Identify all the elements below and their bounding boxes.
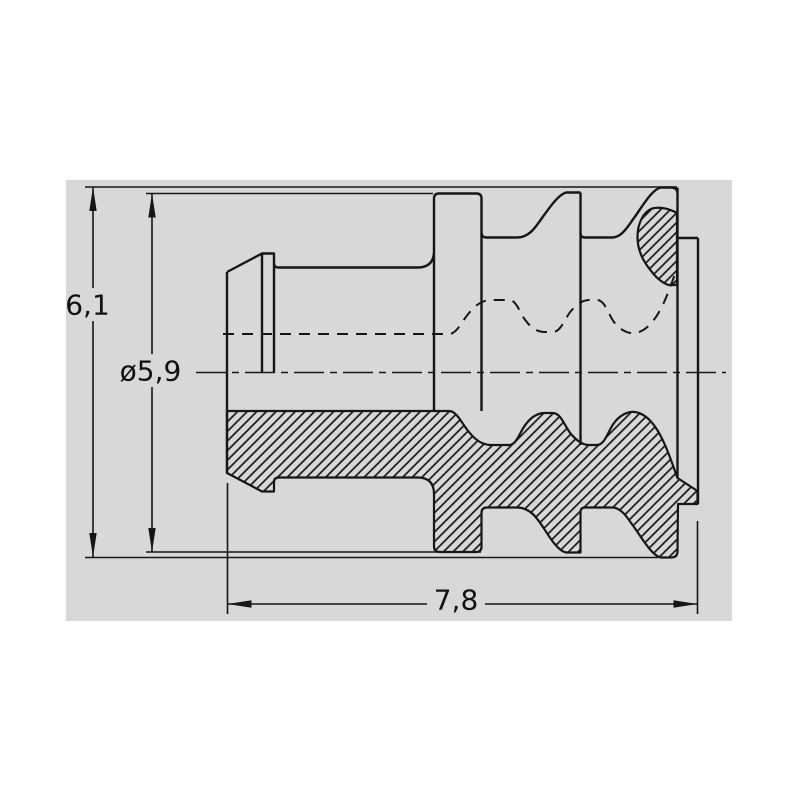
technical-drawing-page: 6,1 ø5,9 7,8 xyxy=(0,0,800,800)
dimension-label-overall-height: 6,1 xyxy=(66,289,110,322)
drawing-canvas xyxy=(66,180,732,621)
seal-cross-section-drawing: 6,1 ø5,9 7,8 xyxy=(66,180,732,621)
dimension-label-seal-diameter: ø5,9 xyxy=(120,355,182,388)
dimension-label-overall-length: 7,8 xyxy=(434,584,479,617)
drawing-panel: 6,1 ø5,9 7,8 xyxy=(66,180,732,621)
